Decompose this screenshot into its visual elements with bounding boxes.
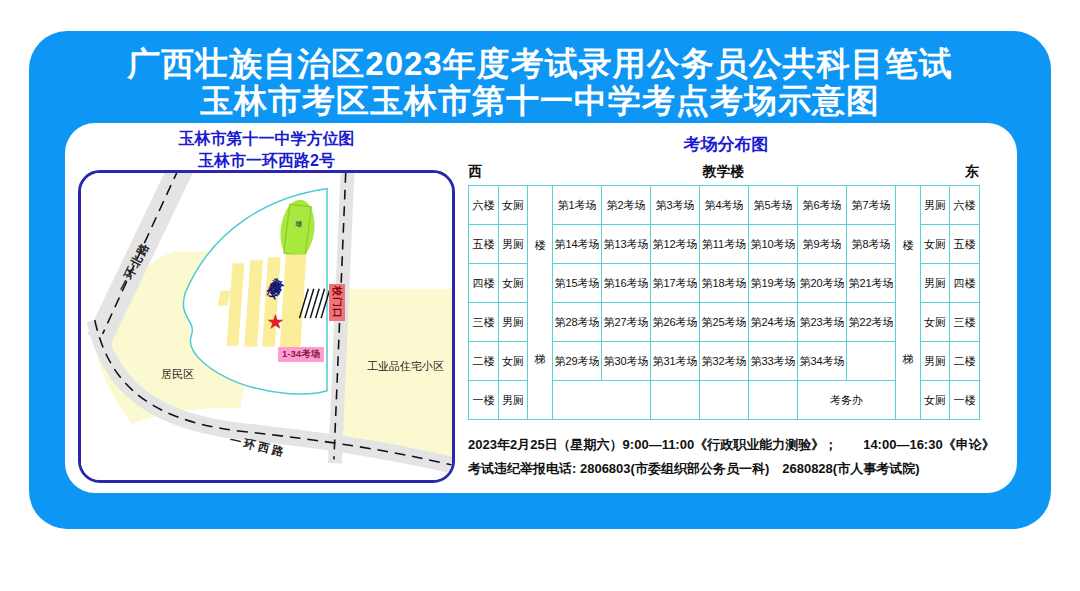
room-cell: 第26考场 xyxy=(651,303,700,342)
room-cell: 第19考场 xyxy=(749,264,798,303)
map-title: 玉林市第十一中学方位图 玉林市一环西路2号 xyxy=(78,128,455,171)
toilet-west: 女厕 xyxy=(499,264,528,303)
floor-west: 二楼 xyxy=(469,342,499,381)
west-label: 西 xyxy=(468,163,482,181)
ground-cell xyxy=(553,381,651,420)
room-cell: 第22考场 xyxy=(847,303,896,342)
room-cell: 第32考场 xyxy=(700,342,749,381)
floor-east: 四楼 xyxy=(950,264,980,303)
toilet-west: 男厕 xyxy=(499,303,528,342)
room-cell: 第21考场 xyxy=(847,264,896,303)
room-cell: 第27考场 xyxy=(602,303,651,342)
floor-west: 四楼 xyxy=(469,264,499,303)
building-header: 教学楼 xyxy=(703,163,745,181)
room-cell: 第3考场 xyxy=(651,186,700,225)
toilet-east: 男厕 xyxy=(921,186,950,225)
exam-schedule-line: 2023年2月25日（星期六）9:00—11:00《行政职业能力测验》； 14:… xyxy=(468,433,1011,457)
toilet-west: 女厕 xyxy=(499,342,528,381)
floor-east: 二楼 xyxy=(950,342,980,381)
floor-west: 六楼 xyxy=(469,186,499,225)
stairs-east: 楼 梯 xyxy=(896,186,921,420)
toilet-west: 男厕 xyxy=(499,381,528,420)
toilet-east: 女厕 xyxy=(921,303,950,342)
room-cell: 第12考场 xyxy=(651,225,700,264)
floor-east: 六楼 xyxy=(950,186,980,225)
room-cell: 第2考场 xyxy=(602,186,651,225)
table-row-floor6: 六楼 女厕 楼 梯 第1考场 第2考场 第3考场 第4考场 第5考场 第6考场 … xyxy=(469,186,980,225)
room-cell: 第33考场 xyxy=(749,342,798,381)
room-cell: 第1考场 xyxy=(553,186,602,225)
location-map: 一环北路 一环西路 球场 教学楼 ★ 1-34考场 校门口 居民区 工业品住宅小… xyxy=(78,170,455,483)
map-title-line2: 玉林市一环西路2号 xyxy=(78,150,455,172)
room-cell: 第13考场 xyxy=(602,225,651,264)
room-cell: 第11考场 xyxy=(700,225,749,264)
room-cell xyxy=(847,342,896,381)
room-cell: 第18考场 xyxy=(700,264,749,303)
room-cell: 第31考场 xyxy=(651,342,700,381)
floor-west: 三楼 xyxy=(469,303,499,342)
map-title-line1: 玉林市第十一中学方位图 xyxy=(78,128,455,150)
distribution-title: 考场分布图 xyxy=(468,133,984,156)
exam-rooms-badge: 1-34考场 xyxy=(278,347,324,362)
room-cell: 第20考场 xyxy=(798,264,847,303)
poster-title: 广西壮族自治区2023年度考试录用公务员公共科目笔试 玉林市考区玉林市第十一中学… xyxy=(29,31,1051,120)
room-cell: 第6考场 xyxy=(798,186,847,225)
ground-cell xyxy=(749,381,798,420)
room-cell: 第10考场 xyxy=(749,225,798,264)
room-cell: 第4考场 xyxy=(700,186,749,225)
room-cell: 第28考场 xyxy=(553,303,602,342)
gate-badge: 校门口 xyxy=(329,284,345,321)
distribution-section: 考场分布图 西 教学楼 东 六楼 女厕 xyxy=(463,133,1011,481)
toilet-west: 男厕 xyxy=(499,225,528,264)
residential-label: 居民区 xyxy=(161,367,194,382)
floor-east: 一楼 xyxy=(950,381,980,420)
exam-office-cell: 考务办 xyxy=(798,381,896,420)
star-icon: ★ xyxy=(266,311,285,332)
stairs-west: 楼 梯 xyxy=(528,186,553,420)
industrial-label: 工业品住宅小区 xyxy=(367,359,444,374)
toilet-east: 女厕 xyxy=(921,381,950,420)
room-cell: 第16考场 xyxy=(602,264,651,303)
floor-west: 一楼 xyxy=(469,381,499,420)
room-cell: 第14考场 xyxy=(553,225,602,264)
room-cell: 第30考场 xyxy=(602,342,651,381)
floor-west: 五楼 xyxy=(469,225,499,264)
ground-cell xyxy=(700,381,749,420)
room-cell: 第7考场 xyxy=(847,186,896,225)
poster-title-line2: 玉林市考区玉林市第十一中学考点考场示意图 xyxy=(29,83,1051,120)
ground-cell xyxy=(651,381,700,420)
east-label: 东 xyxy=(965,163,979,181)
room-cell: 第17考场 xyxy=(651,264,700,303)
room-cell: 第9考场 xyxy=(798,225,847,264)
toilet-east: 男厕 xyxy=(921,264,950,303)
footer-notes: 2023年2月25日（星期六）9:00—11:00《行政职业能力测验》； 14:… xyxy=(468,433,1011,481)
floor-east: 五楼 xyxy=(950,225,980,264)
report-phone-line: 考试违纪举报电话: 2806803(市委组织部公务员一科) 2680828(市人… xyxy=(468,457,1011,481)
direction-header: 西 教学楼 东 xyxy=(468,163,979,181)
room-cell: 第23考场 xyxy=(798,303,847,342)
room-cell: 第29考场 xyxy=(553,342,602,381)
poster-background: 广西壮族自治区2023年度考试录用公务员公共科目笔试 玉林市考区玉林市第十一中学… xyxy=(29,31,1051,529)
floor-east: 三楼 xyxy=(950,303,980,342)
room-cell: 第8考场 xyxy=(847,225,896,264)
room-cell: 第25考场 xyxy=(700,303,749,342)
room-distribution-table: 六楼 女厕 楼 梯 第1考场 第2考场 第3考场 第4考场 第5考场 第6考场 … xyxy=(468,185,980,420)
poster-title-line1: 广西壮族自治区2023年度考试录用公务员公共科目笔试 xyxy=(29,46,1051,83)
toilet-east: 女厕 xyxy=(921,225,950,264)
room-cell: 第5考场 xyxy=(749,186,798,225)
room-cell: 第15考场 xyxy=(553,264,602,303)
room-cell: 第24考场 xyxy=(749,303,798,342)
toilet-west: 女厕 xyxy=(499,186,528,225)
content-panel: 玉林市第十一中学方位图 玉林市一环西路2号 xyxy=(65,123,1017,493)
room-cell: 第34考场 xyxy=(798,342,847,381)
toilet-east: 男厕 xyxy=(921,342,950,381)
